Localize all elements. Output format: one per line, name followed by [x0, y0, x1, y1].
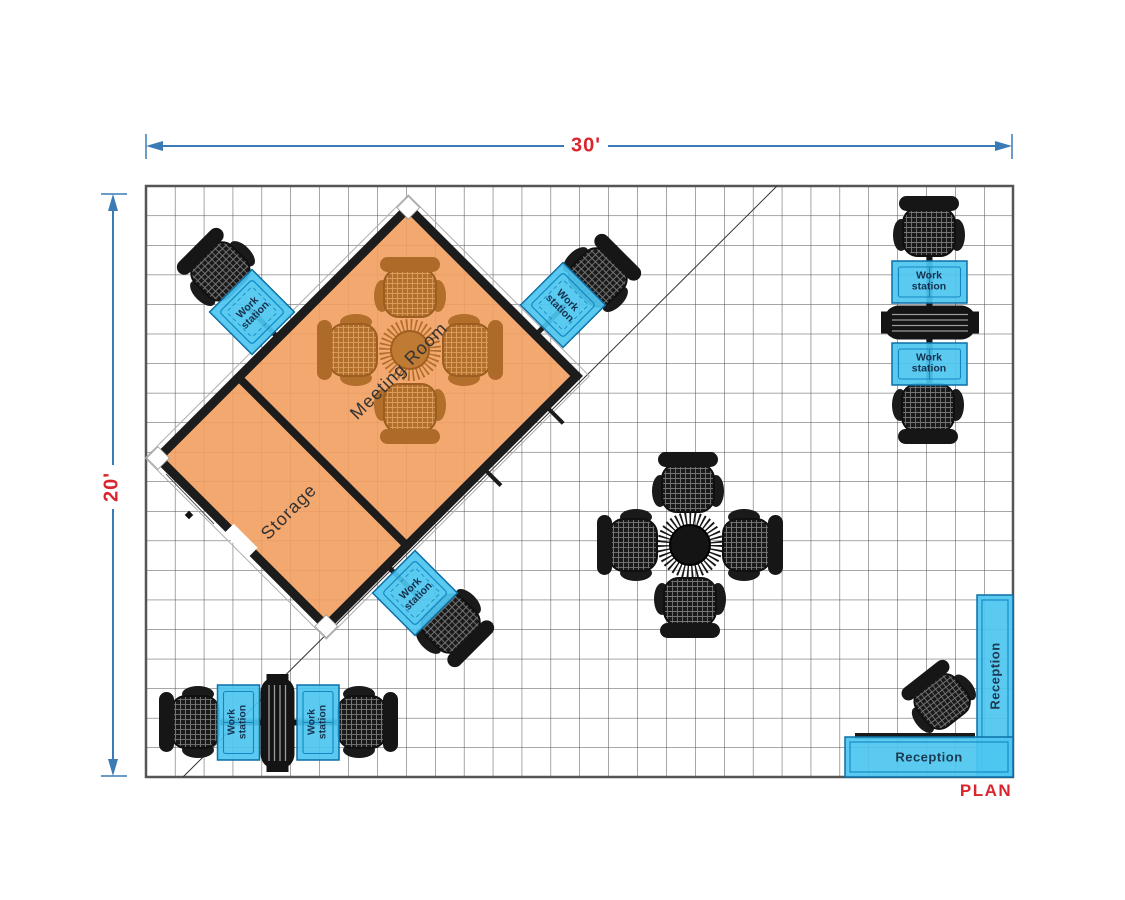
office-chair — [159, 686, 219, 758]
meeting-chair — [317, 314, 377, 386]
workstation-label: Workstation — [912, 353, 946, 376]
workstation-label: Workstation — [912, 271, 946, 294]
center-table — [670, 525, 710, 565]
desk-partition — [261, 674, 295, 772]
plan-drawing — [0, 0, 1125, 900]
office-chair — [338, 686, 398, 758]
width-dimension-label: 30' — [564, 135, 608, 158]
reception-label-horizontal: Reception — [895, 750, 962, 765]
meeting-chair — [443, 314, 503, 386]
office-chair — [652, 452, 724, 512]
office-chair — [893, 196, 965, 256]
meeting-chair — [374, 257, 446, 317]
floor-plan: 30' 20' Meeting Room Storage Workstation… — [0, 0, 1125, 900]
workstation-pair-bottom-left — [159, 674, 398, 772]
workstation-label: Workstation — [307, 705, 330, 739]
office-chair — [723, 509, 783, 581]
office-chair — [597, 509, 657, 581]
height-dimension-label: 20' — [101, 465, 124, 509]
workstation-label: Workstation — [227, 705, 250, 739]
desk-partition — [881, 306, 979, 340]
plan-title: PLAN — [960, 781, 1012, 801]
office-chair — [654, 578, 726, 638]
reception-label-vertical: Reception — [988, 642, 1003, 709]
office-chair — [892, 384, 964, 444]
